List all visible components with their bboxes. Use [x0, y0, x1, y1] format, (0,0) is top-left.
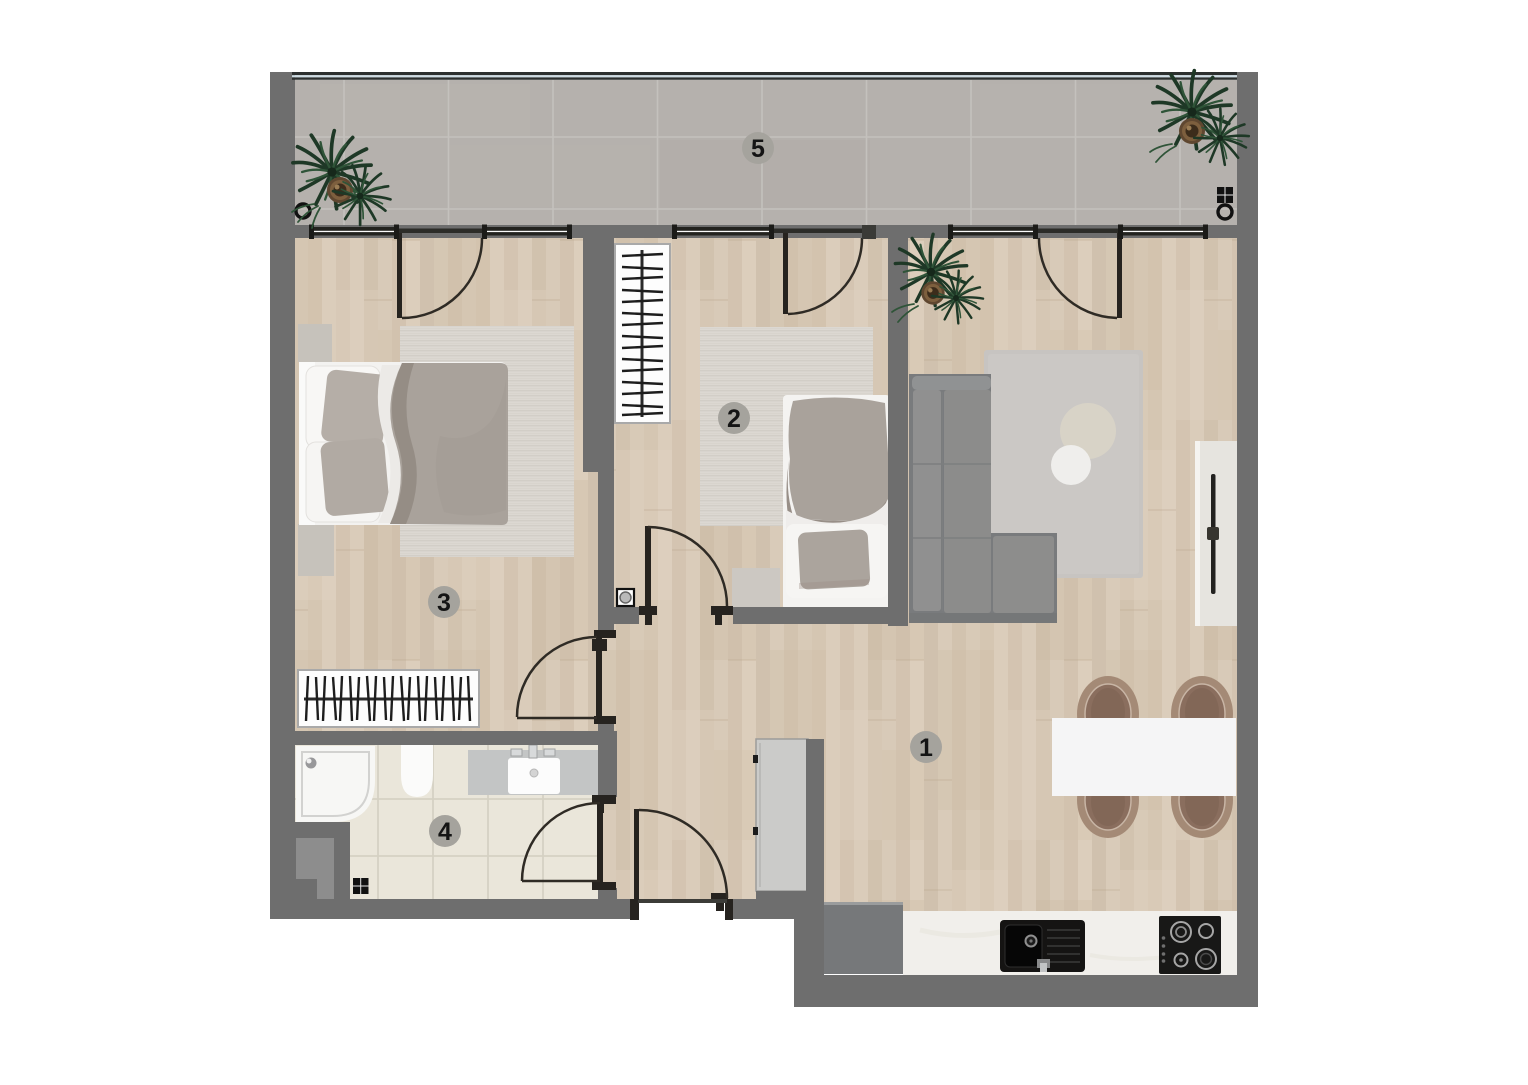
svg-text:2: 2: [727, 405, 741, 433]
svg-text:4: 4: [438, 818, 452, 846]
svg-text:5: 5: [751, 135, 765, 163]
svg-text:1: 1: [919, 734, 933, 762]
svg-text:3: 3: [437, 589, 451, 617]
